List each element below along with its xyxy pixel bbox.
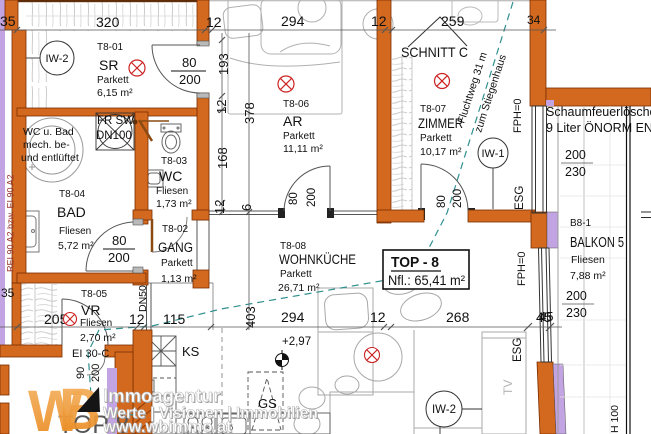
svg-text:www.wbimmo.at: www.wbimmo.at [102, 418, 232, 434]
svg-text:5,72 m²: 5,72 m² [58, 240, 94, 252]
svg-text:35: 35 [1, 286, 15, 300]
svg-text:200: 200 [108, 250, 130, 265]
svg-text:259: 259 [441, 13, 465, 29]
svg-text:T8-06: T8-06 [283, 99, 310, 110]
svg-text:7,88 m²: 7,88 m² [570, 270, 606, 282]
svg-text:BALKON 5: BALKON 5 [570, 235, 624, 251]
svg-text:45: 45 [539, 309, 553, 324]
svg-text:12: 12 [370, 309, 386, 325]
svg-text:378: 378 [242, 102, 257, 124]
svg-text:ZIMMER: ZIMMER [418, 115, 463, 131]
svg-text:WOHNKÜCHE: WOHNKÜCHE [279, 250, 356, 267]
svg-text:268: 268 [446, 309, 470, 325]
svg-text:Fliesen: Fliesen [571, 254, 605, 266]
svg-text:TV: TV [501, 380, 515, 395]
svg-text:80: 80 [288, 192, 300, 205]
svg-text:Parkett: Parkett [420, 133, 452, 144]
svg-text:T8-01: T8-01 [97, 42, 124, 53]
svg-text:12: 12 [129, 311, 145, 327]
svg-text:80: 80 [112, 233, 126, 248]
svg-text:VR: VR [81, 302, 100, 318]
svg-text:193: 193 [216, 53, 231, 75]
svg-text:T8-05: T8-05 [81, 289, 108, 300]
svg-text:ESG: ESG [512, 338, 524, 362]
svg-text:KS: KS [182, 344, 200, 359]
svg-text:TOP - 8: TOP - 8 [391, 254, 439, 271]
svg-text:80: 80 [182, 55, 196, 70]
svg-text:+2,97: +2,97 [282, 336, 311, 348]
svg-text:12: 12 [371, 13, 387, 29]
svg-text:200: 200 [179, 72, 201, 87]
svg-text:11,11 m²: 11,11 m² [283, 143, 323, 155]
svg-text:SCHNITT C: SCHNITT C [401, 44, 468, 60]
svg-text:Nfl.: 65,41 m²: Nfl.: 65,41 m² [388, 273, 465, 288]
svg-text:und entlüftet: und entlüftet [21, 152, 79, 164]
svg-text:10,17 m²: 10,17 m² [420, 146, 462, 158]
svg-text:6: 6 [239, 204, 254, 211]
svg-text:9 Liter ÖNORM EN3: 9 Liter ÖNORM EN3 [546, 121, 651, 135]
svg-text:294: 294 [281, 13, 305, 29]
svg-text:35: 35 [0, 13, 16, 29]
svg-text:BAD: BAD [57, 204, 86, 220]
svg-text:2,70 m²: 2,70 m² [80, 332, 116, 344]
svg-text:Schaumfeuerlösche: Schaumfeuerlösche [546, 105, 651, 119]
svg-text:168: 168 [215, 147, 230, 169]
svg-text:115: 115 [163, 311, 186, 327]
svg-text:12: 12 [212, 200, 227, 214]
svg-text:403: 403 [243, 306, 258, 328]
svg-text:B8-1: B8-1 [570, 218, 592, 229]
svg-text:REI 90 A2 bzw. EI 90 A2: REI 90 A2 bzw. EI 90 A2 [6, 174, 16, 272]
svg-text:SR: SR [99, 57, 118, 73]
svg-text:200: 200 [306, 188, 318, 207]
svg-text:Parkett: Parkett [161, 258, 193, 269]
svg-text:230: 230 [565, 165, 586, 179]
svg-text:Fliesen: Fliesen [59, 226, 91, 237]
svg-text:34: 34 [527, 13, 541, 27]
svg-text:IW-2: IW-2 [432, 404, 456, 416]
svg-text:AR: AR [283, 113, 302, 129]
svg-text:T8-07: T8-07 [420, 104, 447, 115]
svg-text:12: 12 [214, 100, 229, 114]
svg-text:ESG: ESG [514, 186, 526, 210]
svg-text:DN100: DN100 [96, 130, 132, 142]
svg-text:1,73 m²: 1,73 m² [156, 198, 192, 210]
svg-text:mech. be-: mech. be- [23, 139, 70, 151]
svg-text:FPH=0: FPH=0 [516, 251, 528, 286]
svg-text:230: 230 [566, 306, 587, 320]
svg-text:H 100: H 100 [609, 405, 621, 433]
svg-text:EI 30-C: EI 30-C [72, 348, 109, 360]
svg-text:T8-02: T8-02 [162, 224, 189, 235]
svg-text:80: 80 [436, 195, 448, 208]
svg-text:320: 320 [96, 14, 120, 30]
svg-text:IW-2: IW-2 [45, 53, 68, 65]
svg-text:Parkett: Parkett [97, 75, 129, 86]
svg-text:WC u. Bad: WC u. Bad [23, 126, 74, 138]
svg-text:12: 12 [206, 14, 222, 30]
svg-text:Fliesen: Fliesen [156, 186, 188, 197]
svg-text:200: 200 [452, 189, 464, 208]
svg-text:294: 294 [281, 309, 305, 325]
svg-text:Fliesen: Fliesen [80, 318, 112, 329]
svg-text:Parkett: Parkett [283, 131, 315, 142]
svg-text:26,71 m²: 26,71 m² [278, 282, 320, 294]
svg-text:200: 200 [565, 148, 586, 162]
svg-text:GANG: GANG [158, 240, 193, 255]
svg-text:200: 200 [566, 289, 587, 303]
svg-text:WC: WC [159, 168, 182, 184]
svg-text:6,15 m²: 6,15 m² [97, 87, 133, 99]
svg-text:FPH=0: FPH=0 [512, 98, 524, 133]
svg-text:DN50: DN50 [137, 285, 149, 312]
svg-text:T8-03: T8-03 [161, 156, 188, 167]
svg-text:IW-1: IW-1 [481, 148, 504, 160]
svg-text:Parkett: Parkett [280, 269, 312, 280]
svg-text:FR SW: FR SW [97, 115, 134, 127]
svg-text:Immoagentur: Immoagentur [103, 385, 220, 406]
svg-text:T8-04: T8-04 [59, 189, 86, 200]
svg-text:1,13 m²: 1,13 m² [161, 273, 197, 285]
